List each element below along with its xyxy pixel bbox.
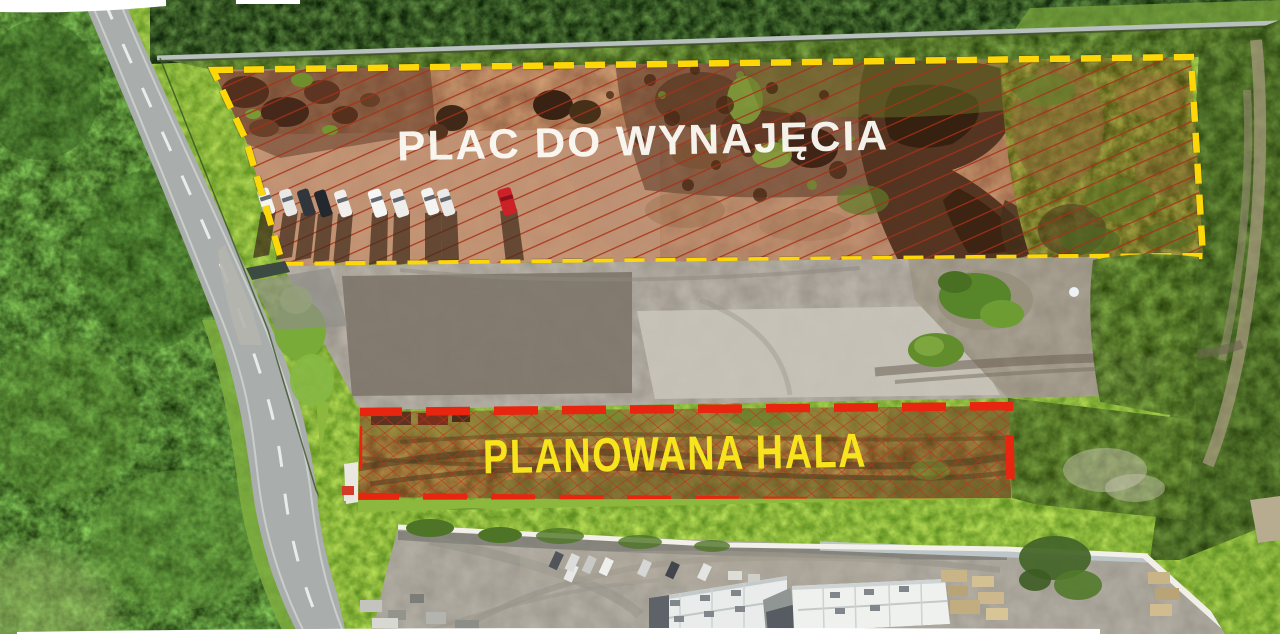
svg-text:PLANOWANA HALA: PLANOWANA HALA bbox=[483, 425, 868, 485]
